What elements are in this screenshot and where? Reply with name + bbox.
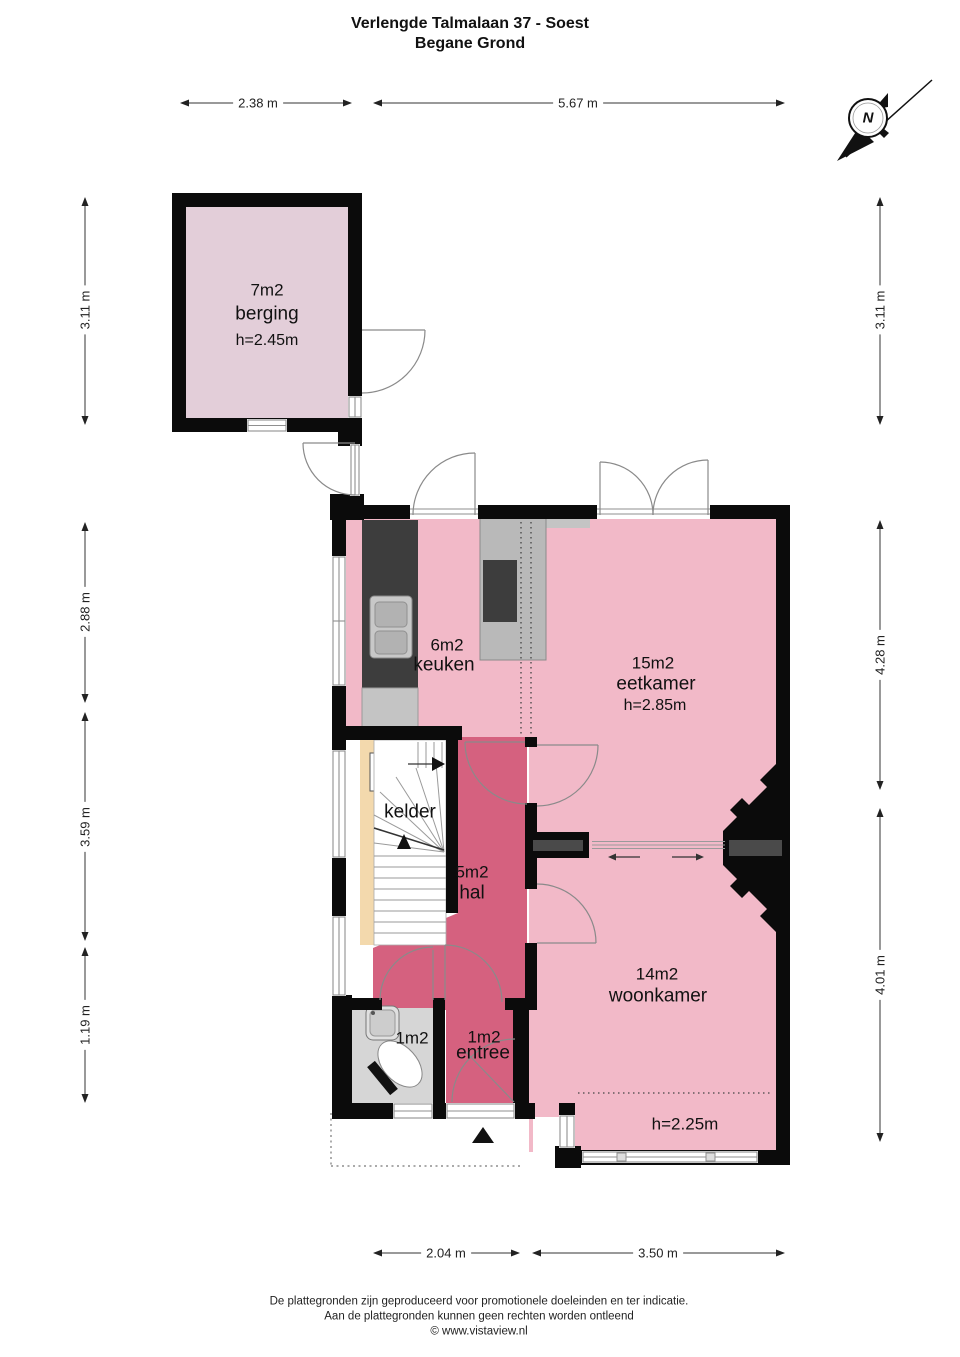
page-subtitle: Begane Grond	[415, 36, 525, 52]
eetkamer-name-label: eetkamer	[616, 675, 695, 694]
dim-left-4: 1.19 m	[79, 1000, 92, 1050]
toilet-entree-wall	[433, 1010, 445, 1105]
entree-name-label: entree	[456, 1044, 510, 1063]
eetkamer-height-label: h=2.85m	[624, 698, 687, 714]
cooktop	[483, 560, 517, 622]
keuken-window	[332, 556, 346, 686]
entrance-marker	[472, 1127, 494, 1143]
kelder-window	[332, 750, 346, 858]
page-title: Verlengde Talmalaan 37 - Soest	[351, 16, 589, 32]
sliding-door-panel	[533, 840, 583, 851]
stair-box	[374, 740, 446, 945]
hall-wall-pier	[433, 998, 445, 1010]
keuken-door-sill	[410, 505, 478, 519]
kelder-name-label: kelder	[384, 803, 436, 822]
berging-door	[362, 330, 425, 393]
footer-disclaimer-1: De plattegronden zijn geproduceerd voor …	[270, 1296, 689, 1308]
dim-right-1: 3.11 m	[874, 286, 887, 335]
entree-north-wall	[505, 998, 530, 1010]
footer-copyright: © www.vistaview.nl	[430, 1326, 527, 1338]
berging-side-window	[348, 396, 362, 418]
toilet-window	[393, 1103, 433, 1119]
chimney-flue	[729, 840, 782, 856]
porch-side-window	[559, 1115, 575, 1148]
floorplan-page: Verlengde Talmalaan 37 - Soest Begane Gr…	[0, 0, 960, 1357]
hal-window	[332, 916, 346, 996]
toilet-area-label: 1m2	[395, 1030, 428, 1047]
passage-gate	[303, 443, 355, 495]
east-wall	[776, 505, 790, 1165]
woonkamer-window	[582, 1151, 758, 1163]
hal-name-label: hal	[459, 884, 484, 903]
dim-left-1: 3.11 m	[79, 286, 92, 335]
faucet	[371, 1011, 375, 1015]
compass	[837, 80, 932, 161]
berging-name-label: berging	[235, 305, 298, 324]
dim-left-3: 3.59 m	[79, 802, 92, 852]
entree-door-sill	[446, 1103, 515, 1119]
dim-right-3: 4.01 m	[874, 950, 887, 1000]
kelder-east-wall	[446, 740, 458, 913]
keuken-kelder-wall	[346, 726, 462, 740]
keuken-area-label: 6m2	[430, 637, 463, 654]
dim-right-2: 4.28 m	[874, 630, 887, 680]
berging-area-label: 7m2	[250, 282, 283, 299]
entree-east-wall	[513, 1010, 529, 1107]
hal-area-label: 5m2	[455, 864, 488, 881]
connector-pillar	[338, 420, 362, 446]
dim-bottom-1: 2.04 m	[421, 1247, 471, 1260]
eetkamer-area-label: 15m2	[632, 655, 675, 672]
hal-wall-stub	[525, 737, 537, 747]
footer-disclaimer-2: Aan de plattegronden kunnen geen rechten…	[324, 1311, 633, 1323]
ceiling-height-note: h=2.25m	[652, 1116, 719, 1133]
passage-screen	[350, 444, 360, 496]
sink-basin	[375, 631, 407, 654]
berging-height-label: h=2.45m	[236, 333, 299, 349]
dim-top-1: 2.38 m	[233, 97, 283, 110]
dim-left-2: 2.88 m	[79, 587, 92, 637]
dim-top-2: 5.67 m	[553, 97, 603, 110]
west-wall-thick	[332, 995, 352, 1107]
woonkamer-area-label: 14m2	[636, 966, 679, 983]
woonkamer-name-label: woonkamer	[609, 987, 707, 1006]
sink-basin	[375, 602, 407, 627]
keuken-name-label: keuken	[413, 656, 474, 675]
compass-n-label: N	[863, 111, 874, 126]
floorplan-drawing	[0, 0, 960, 1357]
north-wall	[332, 505, 790, 519]
dim-bottom-2: 3.50 m	[633, 1247, 683, 1260]
berging-bottom-window	[247, 419, 287, 432]
stairs	[374, 740, 446, 945]
